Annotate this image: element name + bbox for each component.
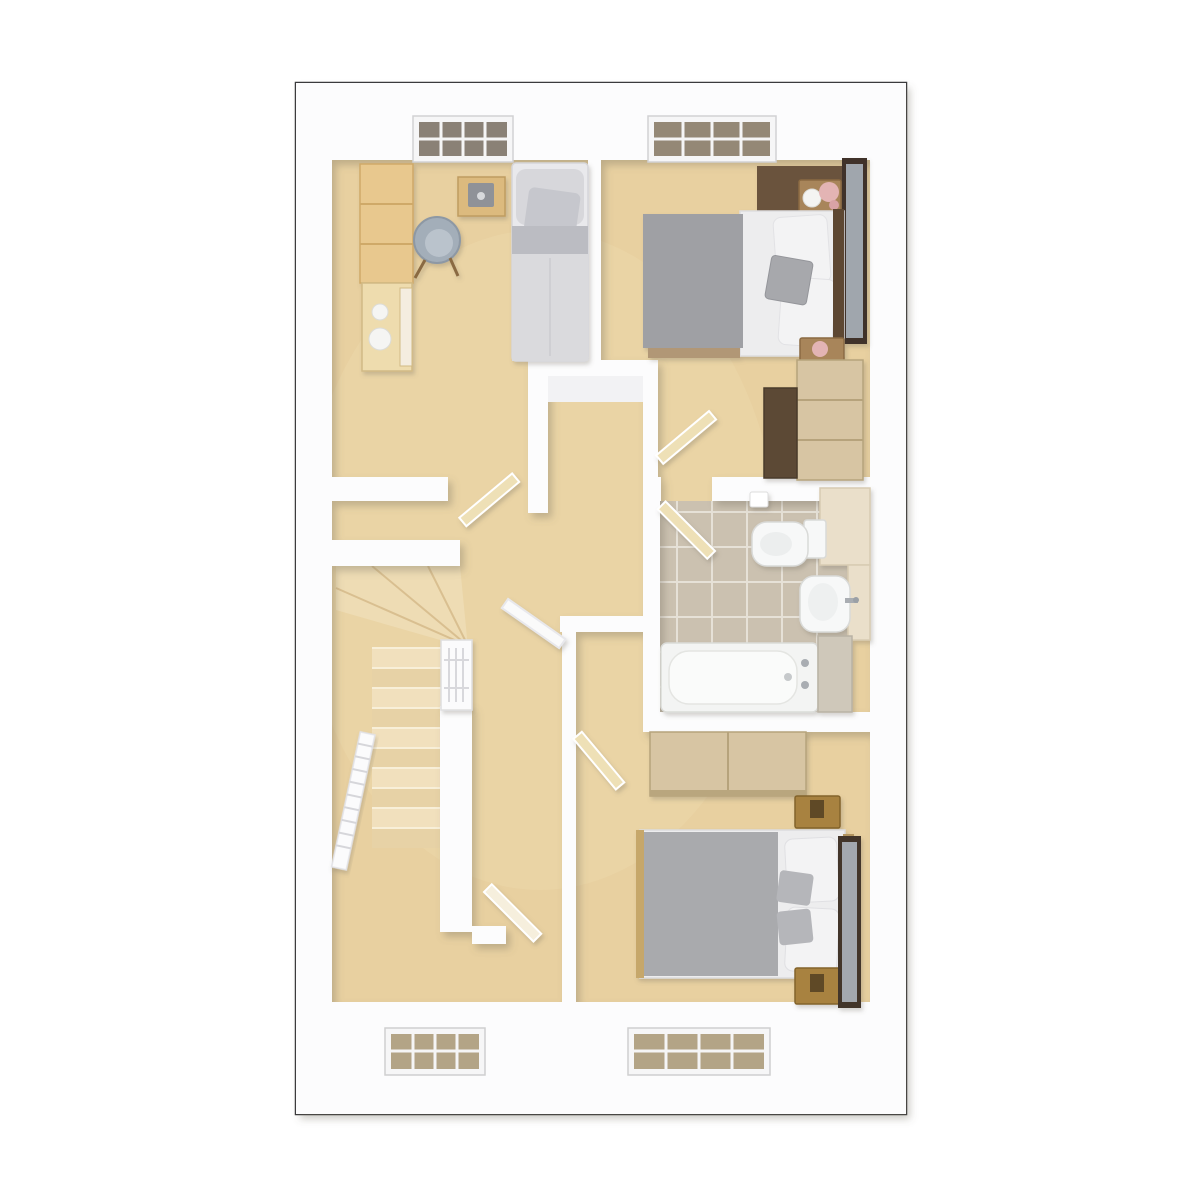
desk: [458, 177, 505, 216]
blanket-fold: [512, 226, 588, 254]
wall-stairwell-east: [440, 706, 472, 932]
newel-post: [441, 640, 472, 710]
wall-bathroom-jamb: [643, 477, 661, 501]
leaning-mirror: [842, 158, 867, 344]
bed-foot-rail: [636, 830, 644, 978]
floor-plan-page: [0, 0, 1200, 1200]
single-bed: [512, 163, 588, 361]
wall-recess-right: [643, 360, 658, 482]
pink-flowers: [819, 182, 839, 202]
wall-bedroom-divider: [588, 83, 601, 363]
wardrobe: [650, 732, 806, 796]
pink-flowers: [812, 341, 828, 357]
wall-nook-north: [560, 616, 643, 632]
bedside-table: [795, 968, 840, 1004]
chest-of-drawers: [362, 283, 412, 371]
bed-cushion: [764, 255, 813, 306]
bath-tap: [801, 681, 809, 689]
window-bottom-right: [628, 1028, 770, 1075]
stair-treads-lower: [372, 708, 440, 848]
wall-west: [296, 83, 332, 1114]
bath-drain: [784, 673, 792, 681]
wall-recess-left: [528, 360, 548, 513]
leaning-mirror: [838, 836, 861, 1008]
toilet-roll-holder: [750, 492, 768, 507]
dark-wardrobe: [764, 388, 797, 478]
double-bed-2: [636, 830, 854, 978]
bed-duvet: [643, 214, 743, 348]
table-lamp: [369, 328, 391, 350]
dresser: [797, 360, 863, 480]
wall-store-doorjamb: [472, 926, 506, 944]
bed-cushion: [776, 908, 813, 945]
floor-plan-render: [0, 0, 1200, 1200]
vanity-counter: [820, 488, 870, 565]
window-top-left: [413, 116, 513, 162]
bed-foot-rail: [648, 348, 740, 358]
wall-stair-halfwall: [331, 540, 460, 566]
table-lamp: [372, 304, 388, 320]
headboard: [833, 209, 844, 356]
double-bed-1: [643, 209, 844, 358]
bedside-table: [795, 796, 840, 828]
wall-bedroom2-west: [562, 632, 576, 1008]
wall-east: [870, 83, 906, 1114]
window-bottom-left: [385, 1028, 485, 1075]
bedside-lamp: [803, 189, 821, 207]
bed-cushion: [776, 870, 814, 906]
wall-bathroom-west: [643, 501, 660, 716]
bathtub: [661, 643, 818, 712]
wall-bathroom-south: [643, 712, 870, 732]
wall-bedroom-single-south: [331, 477, 448, 501]
bath-side-cabinet: [818, 636, 852, 712]
recess-back-face: [548, 376, 643, 402]
bath-tap: [801, 659, 809, 667]
pink-flowers: [829, 200, 839, 210]
window-top-right: [648, 116, 776, 162]
bed-duvet: [644, 832, 778, 976]
tall-wardrobe: [360, 164, 413, 283]
